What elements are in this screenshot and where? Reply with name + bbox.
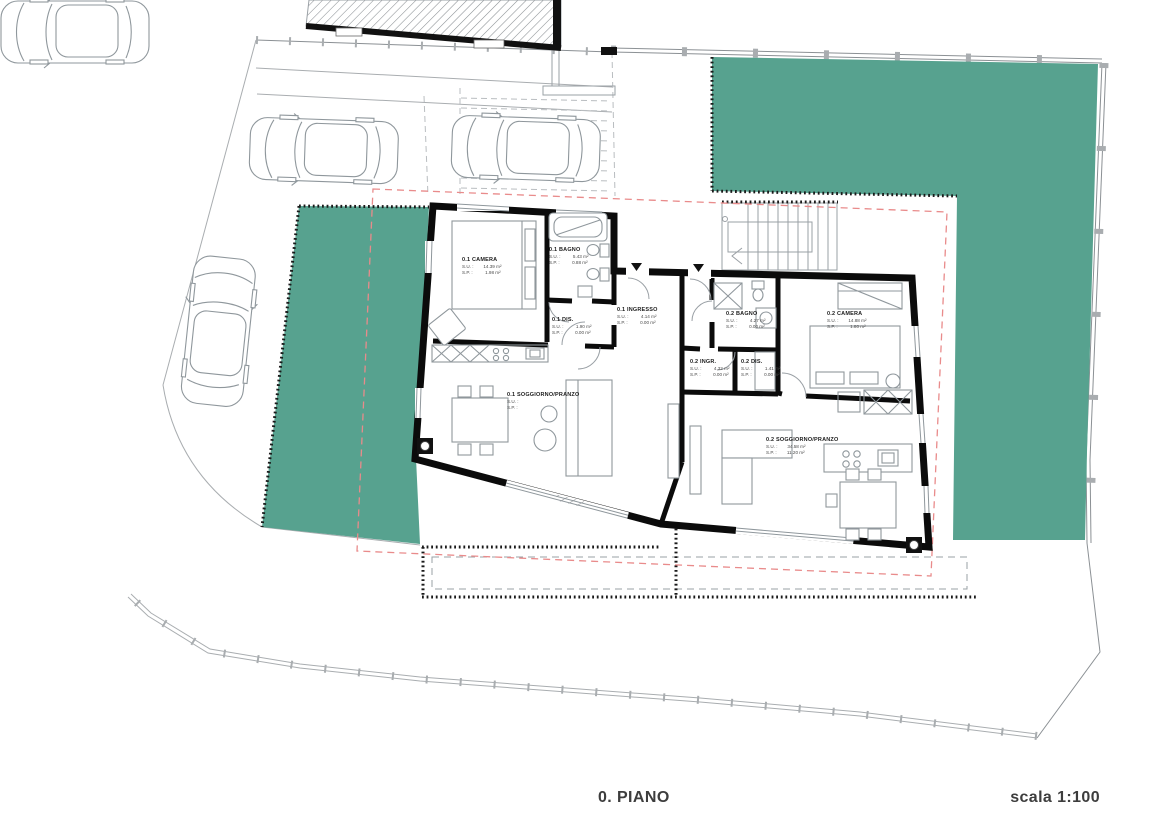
sp-label: S.P. : [741, 372, 752, 378]
room-label-01-dis: 0.1 DIS. S.U. :1.90 m² S.P. :0.00 m² [552, 317, 592, 336]
sp-label: S.P. : [549, 260, 560, 266]
room-label-02-dis: 0.2 DIS. S.U. :1.41 m² S.P. :0.00 m² [741, 359, 781, 378]
sp-label: S.P. : [726, 324, 737, 330]
car-icon [1, 0, 149, 68]
green-area-left [262, 206, 429, 544]
floor-title: 0. PIANO [598, 789, 670, 807]
room-label-02-soggiorno: 0.2 SOGGIORNO/PRANZO S.U. :34.58 m² S.P.… [766, 437, 838, 456]
room-name: 0.1 CAMERA [462, 257, 502, 264]
room-label-01-camera: 0.1 CAMERA S.U. :14.39 m² S.P. :1.98 m² [462, 257, 502, 276]
sp-label: S.P. : [617, 320, 628, 326]
sp-value: 1.98 m² [477, 270, 501, 276]
car-1 [249, 112, 399, 189]
sp-label: S.P. : [507, 405, 518, 411]
room-label-02-ingresso: 0.2 INGR. S.U. :4.32 m² S.P. :0.00 m² [690, 359, 730, 378]
car-2 [451, 110, 601, 187]
sp-value [522, 405, 546, 411]
room-label-01-bagno: 0.1 BAGNO S.U. :5.43 m² S.P. :0.88 m² [549, 247, 589, 266]
sp-label: S.P. : [462, 270, 473, 276]
sp-value: 0.00 m² [632, 320, 656, 326]
sp-value: 0.88 m² [564, 260, 588, 266]
room-label-02-camera: 0.2 CAMERA S.U. :14.88 m² S.P. :1.80 m² [827, 311, 867, 330]
sp-value: 0.00 m² [741, 324, 765, 330]
room-label-01-ingresso: 0.1 INGRESSO S.U. :4.14 m² S.P. :0.00 m² [617, 307, 658, 326]
sp-value: 0.00 m² [705, 372, 729, 378]
room-name: 0.2 INGR. [690, 359, 730, 366]
site-plan-drawing [0, 0, 1160, 828]
sp-value: 1.80 m² [842, 324, 866, 330]
room-name: 0.1 INGRESSO [617, 307, 658, 314]
scale-label: scala 1:100 [1000, 789, 1100, 807]
sp-label: S.P. : [690, 372, 701, 378]
car-3 [175, 254, 262, 409]
sp-value: 0.00 m² [756, 372, 780, 378]
room-label-01-soggiorno: 0.1 SOGGIORNO/PRANZO S.U. : S.P. : [507, 392, 579, 411]
sp-label: S.P. : [766, 450, 777, 456]
room-name: 0.2 SOGGIORNO/PRANZO [766, 437, 838, 444]
floor-plan-canvas: 0.1 CAMERA S.U. :14.39 m² S.P. :1.98 m² … [0, 0, 1160, 828]
staircase [722, 202, 838, 270]
sp-label: S.P. : [827, 324, 838, 330]
room-name: 0.1 SOGGIORNO/PRANZO [507, 392, 579, 399]
room-name: 0.1 BAGNO [549, 247, 589, 254]
room-name: 0.2 BAGNO [726, 311, 766, 318]
room-name: 0.2 DIS. [741, 359, 781, 366]
sp-value: 11.20 m² [781, 450, 805, 456]
sp-value: 0.00 m² [567, 330, 591, 336]
room-name: 0.2 CAMERA [827, 311, 867, 318]
building [415, 202, 931, 553]
sp-label: S.P. : [552, 330, 563, 336]
room-label-02-bagno: 0.2 BAGNO S.U. :4.27 m² S.P. :0.00 m² [726, 311, 766, 330]
room-name: 0.1 DIS. [552, 317, 592, 324]
